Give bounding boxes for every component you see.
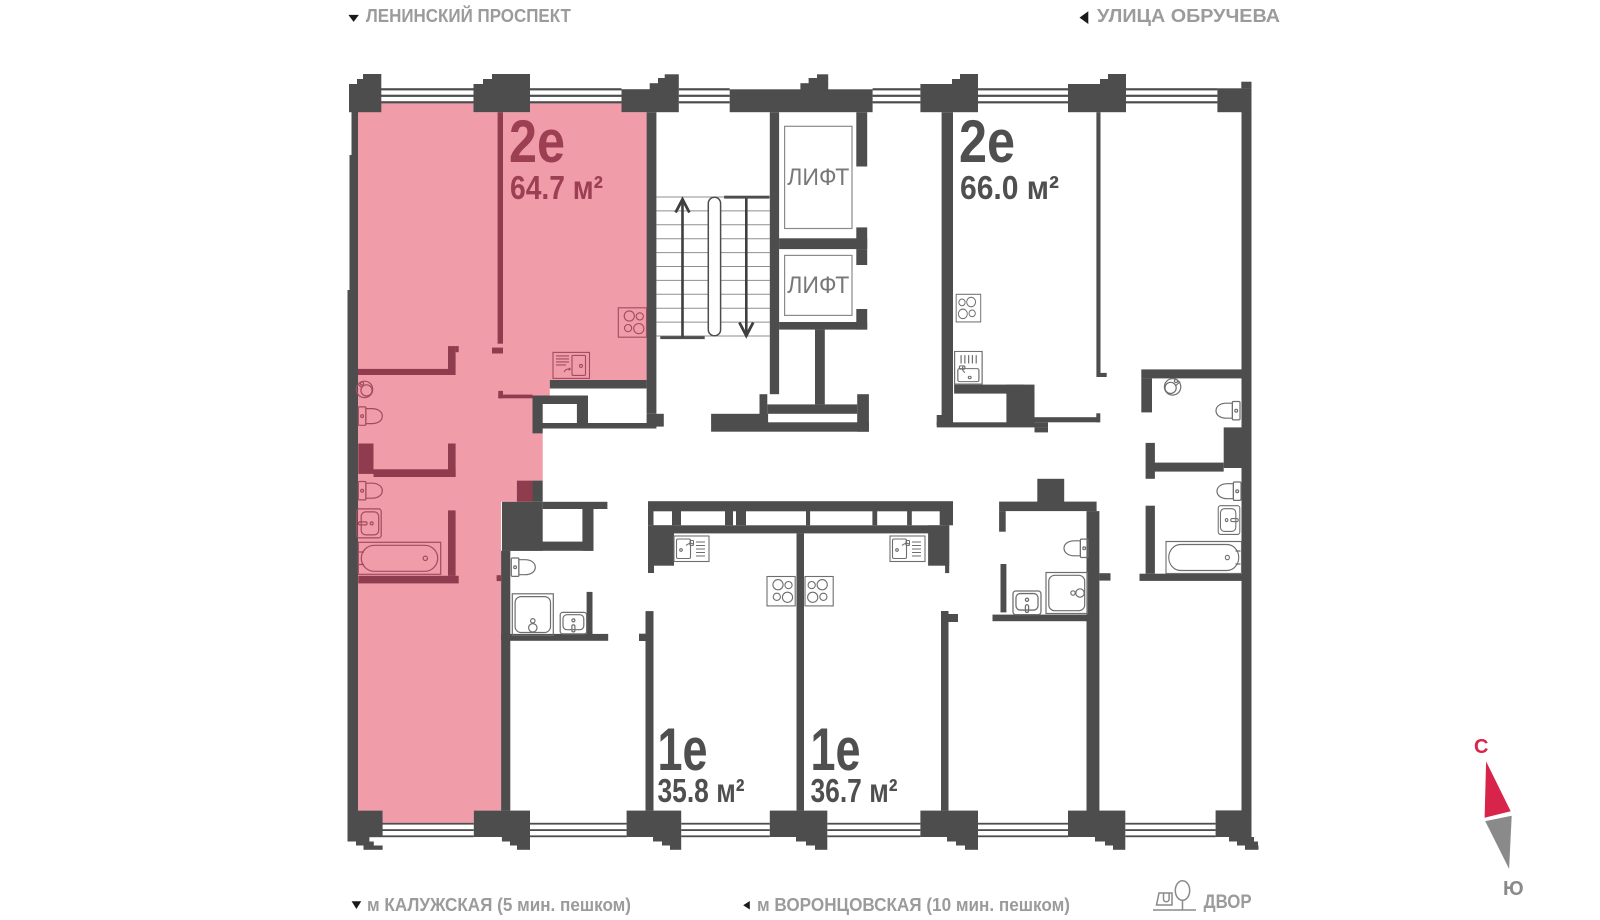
svg-text:м КАЛУЖСКАЯ (5 мин. пешком): м КАЛУЖСКАЯ (5 мин. пешком) (367, 895, 631, 915)
svg-text:ЛЕНИНСКИЙ ПРОСПЕКТ: ЛЕНИНСКИЙ ПРОСПЕКТ (366, 5, 571, 26)
svg-text:С: С (1474, 736, 1488, 758)
svg-text:2е: 2е (509, 108, 565, 175)
svg-text:ЛИФТ: ЛИФТ (787, 164, 849, 191)
svg-text:2е: 2е (959, 108, 1015, 175)
svg-text:ЛИФТ: ЛИФТ (787, 272, 849, 299)
svg-text:УЛИЦА ОБРУЧЕВА: УЛИЦА ОБРУЧЕВА (1097, 6, 1280, 26)
svg-text:36.7 м²: 36.7 м² (811, 772, 898, 809)
svg-text:Ю: Ю (1503, 878, 1524, 900)
svg-text:35.8 м²: 35.8 м² (658, 772, 745, 809)
svg-text:м ВОРОНЦОВСКАЯ (10 мин. пешко: м ВОРОНЦОВСКАЯ (10 мин. пешком) (757, 895, 1070, 915)
svg-text:64.7 м²: 64.7 м² (510, 169, 603, 206)
svg-text:ДВОР: ДВОР (1204, 892, 1252, 913)
svg-text:66.0 м²: 66.0 м² (960, 169, 1059, 206)
